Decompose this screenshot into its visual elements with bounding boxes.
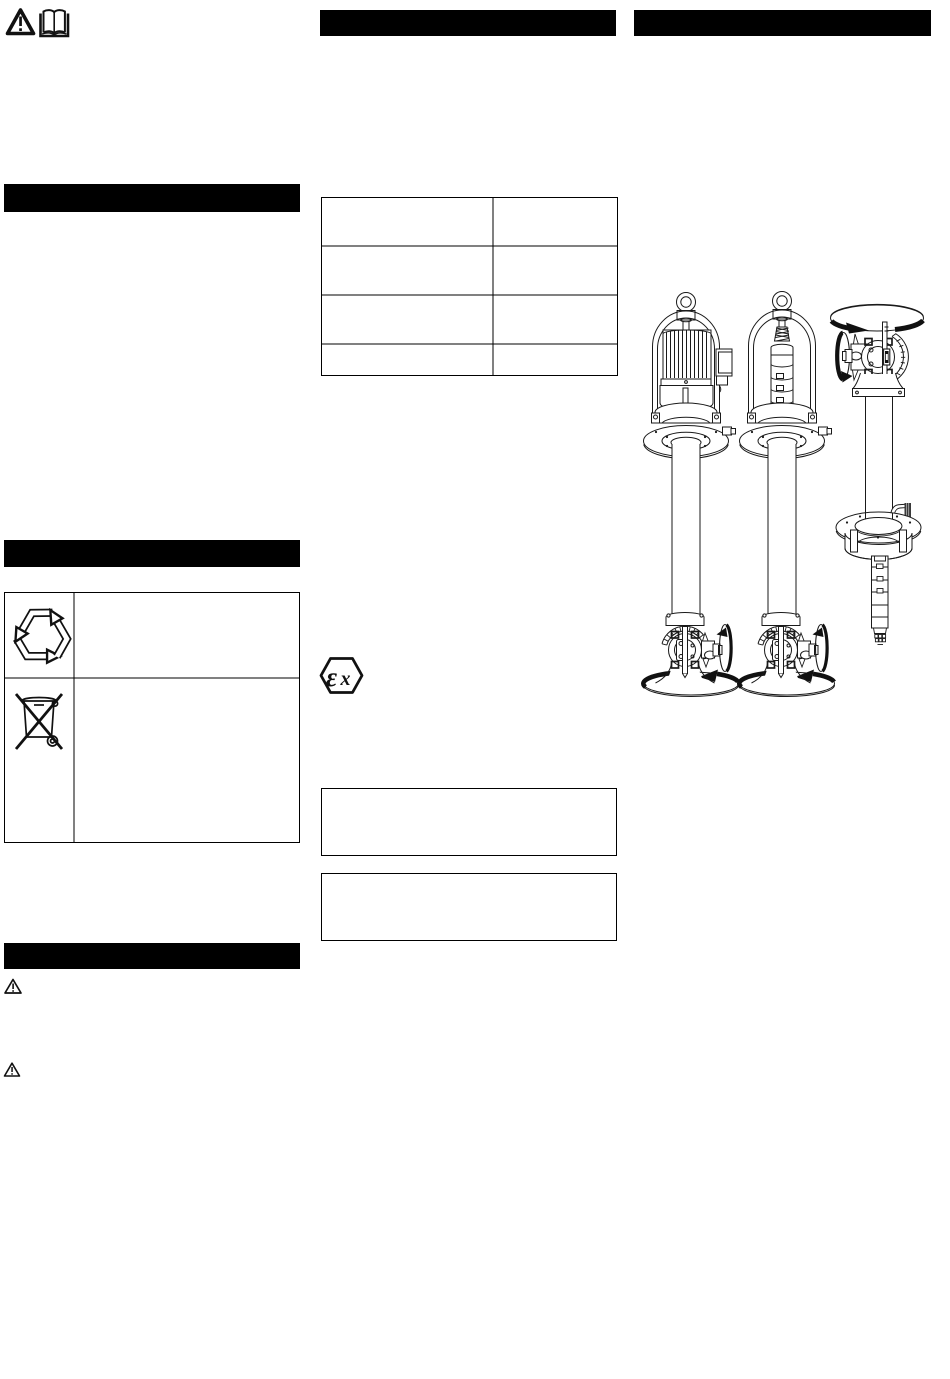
svg-text:x: x (340, 668, 351, 690)
svg-text:ε: ε (326, 662, 337, 692)
